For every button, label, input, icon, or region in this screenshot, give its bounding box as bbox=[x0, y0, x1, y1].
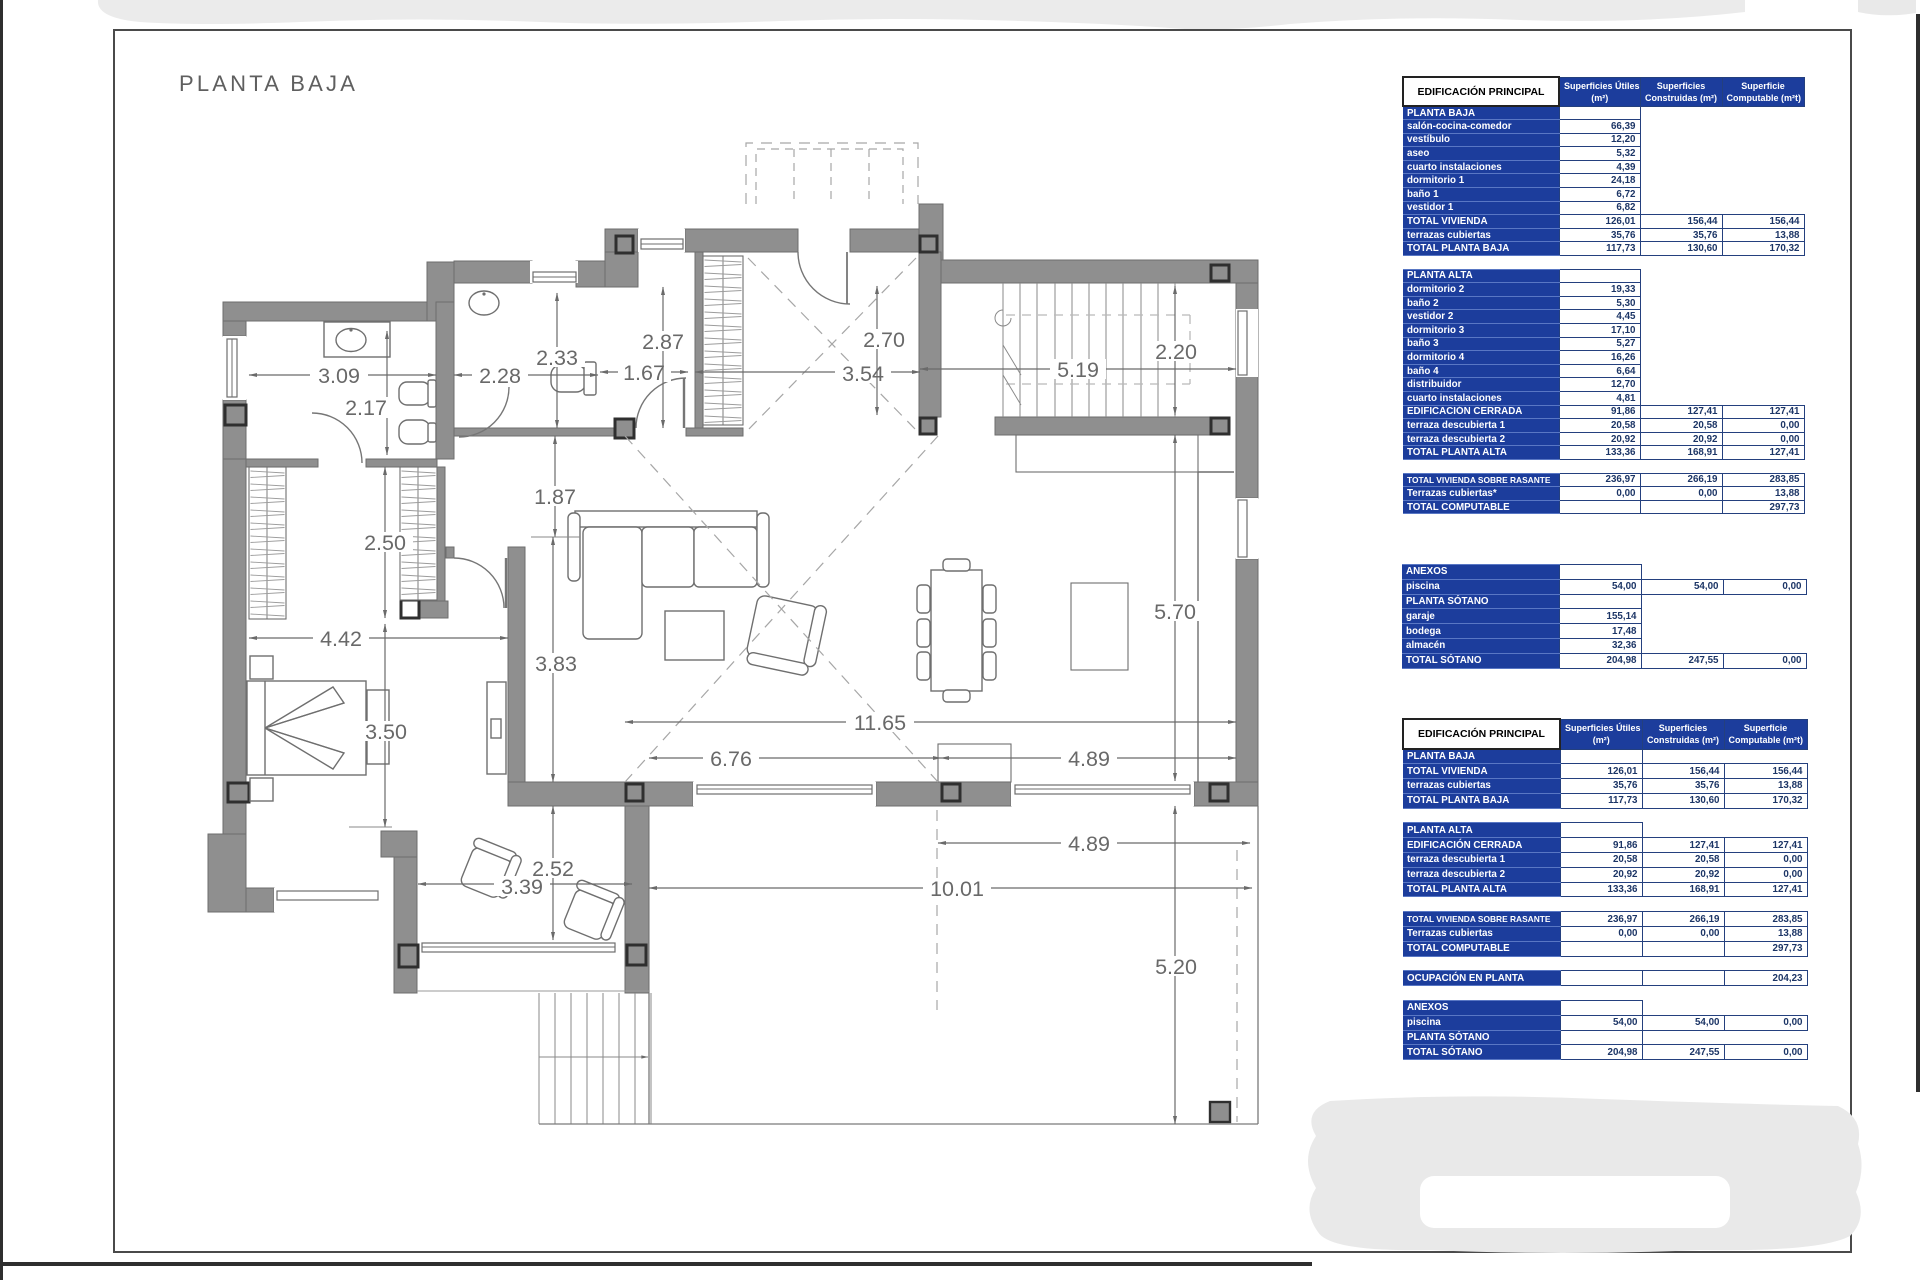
svg-text:4.42: 4.42 bbox=[320, 627, 362, 651]
svg-text:11.65: 11.65 bbox=[854, 711, 906, 735]
svg-text:2.87: 2.87 bbox=[642, 330, 684, 354]
svg-text:2.33: 2.33 bbox=[536, 346, 578, 370]
svg-text:4.89: 4.89 bbox=[1068, 832, 1110, 856]
svg-text:3.83: 3.83 bbox=[535, 652, 577, 676]
svg-text:PLANTA BAJA: PLANTA BAJA bbox=[179, 71, 358, 96]
svg-text:10.01: 10.01 bbox=[930, 877, 984, 901]
svg-text:5.20: 5.20 bbox=[1155, 955, 1197, 979]
svg-text:2.17: 2.17 bbox=[345, 396, 387, 420]
svg-text:2.28: 2.28 bbox=[479, 364, 521, 388]
svg-text:5.19: 5.19 bbox=[1057, 358, 1099, 382]
svg-text:1.87: 1.87 bbox=[534, 485, 576, 509]
svg-text:2.20: 2.20 bbox=[1155, 340, 1197, 364]
svg-text:3.50: 3.50 bbox=[365, 720, 407, 744]
svg-text:2.50: 2.50 bbox=[364, 531, 406, 555]
svg-text:5.70: 5.70 bbox=[1154, 600, 1196, 624]
svg-text:3.09: 3.09 bbox=[318, 364, 360, 388]
svg-text:1.67: 1.67 bbox=[623, 361, 665, 385]
svg-text:2.70: 2.70 bbox=[863, 328, 905, 352]
svg-text:3.54: 3.54 bbox=[842, 362, 884, 386]
svg-text:4.89: 4.89 bbox=[1068, 747, 1110, 771]
svg-text:3.39: 3.39 bbox=[501, 875, 543, 899]
svg-text:6.76: 6.76 bbox=[710, 747, 752, 771]
